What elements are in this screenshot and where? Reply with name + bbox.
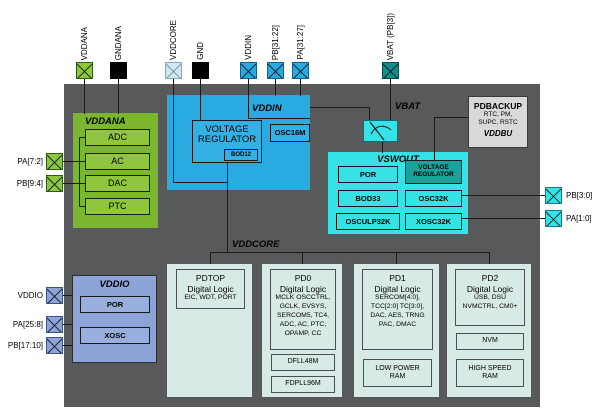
- pd2-subtitle: Digital Logic: [457, 284, 523, 295]
- pd2-logic-box: PD2 Digital Logic USB, DSU NVMCTRL, CM0+: [455, 269, 525, 326]
- pin-pb17-10: PB[17:10]: [0, 337, 63, 354]
- module-bod12: BOD12: [224, 149, 258, 161]
- pdtop-block: PDTOP Digital Logic EIC, WDT, PORT: [166, 263, 253, 398]
- pin-pb17-10-box: [46, 337, 63, 354]
- pdbackup-title: PDBACKUP: [469, 101, 527, 111]
- pin-vddana-box: [76, 62, 93, 79]
- pin-gndana-box: [110, 62, 127, 79]
- pd2-block: PD2 Digital Logic USB, DSU NVMCTRL, CM0+…: [446, 263, 532, 398]
- module-bod33: BOD33: [338, 190, 398, 207]
- module-low-power-ram: LOW POWER RAM: [363, 359, 432, 387]
- pd0-logic-box: PD0 Digital Logic MCLK OSCCTRL, GCLK, EV…: [270, 269, 336, 350]
- pin-pa25-8-box: [46, 316, 63, 333]
- pd1-details: SERCOM[4:0], TCC[2:0] TC[3:0], DAC, AES,…: [364, 294, 431, 329]
- pdtop-details: EIC, WDT, PORT: [178, 294, 243, 303]
- pin-x-icon: [268, 63, 283, 78]
- pin-vddio-box: [46, 287, 63, 304]
- pin-pa1-0-box: [545, 210, 562, 227]
- module-fdpll96m: FDPLL96M: [271, 376, 335, 393]
- pin-vbat-pb3-label: VBAT (PB[3]): [386, 13, 395, 60]
- pin-pa1-0: PA[1:0]: [545, 210, 600, 227]
- pin-vddcore: VDDCORE: [165, 4, 182, 79]
- pin-x-icon: [293, 63, 308, 78]
- pin-x-icon: [383, 63, 398, 78]
- pdbackup-block: PDBACKUP RTC, PM, SUPC, RSTC VDDBU: [468, 96, 528, 148]
- module-osc16m: OSC16M: [270, 124, 310, 142]
- pin-pb3-0-box: [545, 187, 562, 204]
- module-nvm: NVM: [456, 333, 524, 350]
- pin-pb3-0-label: PB[3:0]: [566, 191, 592, 200]
- module-high-speed-ram: HIGH SPEED RAM: [456, 359, 524, 387]
- pin-pa31-27-label: PA[31:27]: [296, 25, 305, 60]
- pin-pb9-4-label: PB[9:4]: [17, 179, 43, 188]
- pin-pa7-2: PA[7:2]: [0, 153, 63, 170]
- pin-vddio-label: VDDIO: [18, 291, 43, 300]
- vbat-domain-label: VBAT: [395, 101, 420, 112]
- pin-x-icon: [111, 63, 126, 78]
- pdbackup-peripherals-2: SUPC, RSTC: [469, 119, 527, 127]
- pin-vddin-label: VDDIN: [244, 35, 253, 60]
- module-dac: DAC: [85, 175, 150, 192]
- pin-vddio: VDDIO: [0, 287, 63, 304]
- pin-pa7-2-label: PA[7:2]: [17, 157, 43, 166]
- module-ptc: PTC: [85, 198, 150, 215]
- pin-vddana: VDDANA: [76, 4, 93, 79]
- vbat-switch: [363, 120, 398, 142]
- power-domain-diagram: VDDANA ADC AC DAC PTC VDDIN VOLTAGE REGU…: [0, 0, 600, 412]
- vddana-domain-block: VDDANA ADC AC DAC PTC: [73, 113, 158, 228]
- pin-gnd: GND: [192, 4, 209, 79]
- pin-x-icon: [77, 63, 92, 78]
- pd0-details: MCLK OSCCTRL, GCLK, EVSYS, SERCOM5, TC4,…: [272, 294, 334, 338]
- pin-x-icon: [241, 63, 256, 78]
- pin-pa25-8-label: PA[25:8]: [13, 320, 43, 329]
- pin-pb9-4-box: [46, 175, 63, 192]
- module-dfll48m: DFLL48M: [271, 354, 335, 371]
- vddana-domain-label: VDDANA: [85, 116, 126, 127]
- pin-pb3-0: PB[3:0]: [545, 187, 600, 204]
- pdtop-title: PDTOP: [178, 273, 243, 284]
- pin-pb31-22-box: [267, 62, 284, 79]
- module-voltage-regulator-main: VOLTAGE REGULATOR BOD12: [192, 120, 262, 163]
- pin-gnd-label: GND: [196, 42, 205, 60]
- vddin-domain-label: VDDIN: [252, 103, 282, 114]
- pin-x-icon: [47, 338, 62, 353]
- pin-vddcore-box: [165, 62, 182, 79]
- pd1-block: PD1 Digital Logic SERCOM[4:0], TCC[2:0] …: [353, 263, 440, 398]
- module-xosc: XOSC: [80, 327, 150, 344]
- pin-pa25-8: PA[25:8]: [0, 316, 63, 333]
- pin-gndana: GNDANA: [110, 4, 127, 79]
- pin-pb31-22: PB[31:22]: [267, 4, 284, 79]
- module-xosc32k: XOSC32K: [405, 213, 462, 230]
- module-adc: ADC: [85, 129, 150, 146]
- pd2-details: USB, DSU NVMCTRL, CM0+: [457, 294, 523, 312]
- pd1-logic-box: PD1 Digital Logic SERCOM[4:0], TCC[2:0] …: [362, 269, 433, 350]
- pin-gndana-label: GNDANA: [114, 26, 123, 60]
- pin-x-icon: [47, 317, 62, 332]
- pin-vddana-label: VDDANA: [80, 27, 89, 60]
- pin-x-icon: [47, 154, 62, 169]
- pin-x-icon: [546, 188, 561, 203]
- pin-x-icon: [47, 176, 62, 191]
- pin-gnd-box: [192, 62, 209, 79]
- vddio-domain-block: VDDIO POR XOSC: [72, 275, 157, 363]
- pdtop-subtitle: Digital Logic: [178, 284, 243, 295]
- pin-pa1-0-label: PA[1:0]: [566, 214, 592, 223]
- vddin-domain-block: VDDIN VOLTAGE REGULATOR BOD12 OSC16M: [167, 95, 310, 190]
- voltage-regulator-main-label: VOLTAGE REGULATOR: [193, 125, 261, 145]
- pd1-subtitle: Digital Logic: [364, 284, 431, 295]
- vddcore-domain-label: VDDCORE: [232, 239, 280, 250]
- pin-pa7-2-box: [46, 153, 63, 170]
- pin-x-icon: [166, 63, 181, 78]
- pd0-subtitle: Digital Logic: [272, 284, 334, 295]
- module-por-io: POR: [80, 296, 150, 313]
- module-voltage-regulator-backup: VOLTAGE REGULATOR: [405, 160, 462, 184]
- vddio-domain-label: VDDIO: [73, 279, 156, 290]
- vswout-domain-block: VSWOUT POR BOD33 OSCULP32K VOLTAGE REGUL…: [328, 152, 468, 234]
- pin-vbat-pb3-box: [382, 62, 399, 79]
- pdbackup-peripherals-1: RTC, PM,: [469, 111, 527, 119]
- pd2-title: PD2: [457, 273, 523, 284]
- module-osculp32k: OSCULP32K: [336, 213, 400, 230]
- pdtop-logic-box: PDTOP Digital Logic EIC, WDT, PORT: [176, 269, 245, 309]
- pin-vddcore-label: VDDCORE: [169, 20, 178, 60]
- pin-vddin-box: [240, 62, 257, 79]
- pd1-title: PD1: [364, 273, 431, 284]
- vddbu-domain-label: VDDBU: [469, 129, 527, 138]
- pin-pb9-4: PB[9:4]: [0, 175, 63, 192]
- module-osc32k: OSC32K: [405, 190, 462, 207]
- pin-x-icon: [47, 288, 62, 303]
- pin-pa31-27-box: [292, 62, 309, 79]
- pin-x-icon: [546, 211, 561, 226]
- pin-vddin: VDDIN: [240, 4, 257, 79]
- pd0-title: PD0: [272, 273, 334, 284]
- pin-vbat-pb3: VBAT (PB[3]): [382, 4, 399, 79]
- pin-pa31-27: PA[31:27]: [292, 4, 309, 79]
- switch-icon: [364, 121, 397, 141]
- pin-pb17-10-label: PB[17:10]: [8, 341, 43, 350]
- pin-pb31-22-label: PB[31:22]: [271, 25, 280, 60]
- pin-x-icon: [193, 63, 208, 78]
- pd0-block: PD0 Digital Logic MCLK OSCCTRL, GCLK, EV…: [261, 263, 343, 398]
- module-por-backup: POR: [338, 166, 398, 183]
- module-ac: AC: [85, 153, 150, 170]
